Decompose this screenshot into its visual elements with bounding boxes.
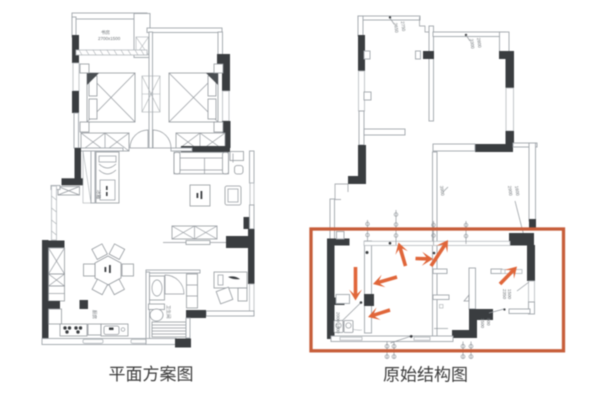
svg-text:3650: 3650 — [393, 22, 399, 33]
svg-text:2800: 2800 — [476, 37, 482, 48]
svg-text:3300: 3300 — [469, 38, 475, 49]
svg-text:2350: 2350 — [502, 289, 507, 300]
svg-text:2000 1800: 2000 1800 — [336, 312, 341, 334]
svg-text:厨房: 厨房 — [91, 310, 98, 319]
svg-text:卫生间: 卫生间 — [165, 305, 172, 319]
svg-text:1500: 1500 — [480, 318, 485, 329]
svg-text:1500: 1500 — [507, 289, 512, 300]
svg-text:书房: 书房 — [101, 29, 110, 36]
svg-text:平面方案图: 平面方案图 — [109, 365, 194, 384]
svg-text:原始结构图: 原始结构图 — [383, 366, 468, 385]
svg-text:2900: 2900 — [507, 185, 513, 196]
svg-text:800: 800 — [486, 318, 491, 326]
svg-text:2750: 2750 — [400, 21, 406, 32]
svg-text:冰箱: 冰箱 — [95, 190, 102, 199]
svg-text:2700x1500: 2700x1500 — [98, 36, 121, 41]
svg-text:1600: 1600 — [514, 185, 520, 196]
